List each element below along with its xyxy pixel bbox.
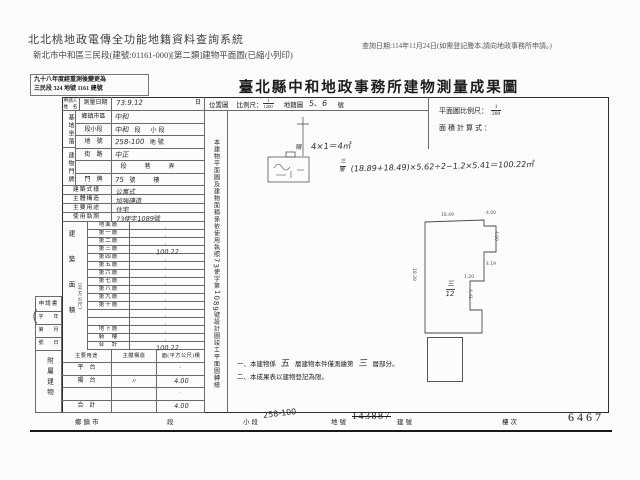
footer-township-label: 鄉鎮市 [75, 416, 101, 426]
dimension-label: 4.41 [467, 289, 472, 299]
land-registry-print-view: 北北桃地政電傳全功能地籍資料查詢系統 查詢日期:114年11月24日(如需登記謄… [0, 0, 640, 480]
footer-section-label: 段 [167, 416, 176, 426]
dimension-label: 4.00 [486, 211, 496, 216]
dimension-label: 1.20 [464, 275, 474, 280]
building-plan-outline [425, 220, 496, 333]
scan-graphics [0, 0, 640, 480]
dimension-label: 18.39 [411, 268, 416, 281]
footer-subsection-label: 小段 [243, 416, 260, 426]
location-sketch [268, 117, 309, 182]
footer-old-building-number: 143887 [352, 411, 391, 422]
dimension-label: 18.49 [441, 213, 454, 218]
dimension-label: 4.19 [486, 262, 496, 267]
dimension-label: 4.00 [493, 231, 498, 241]
footer-floor-label: 樓次 [502, 416, 519, 426]
footer-parcel-label: 地號 [331, 416, 348, 426]
footer-building-label: 建號 [397, 416, 414, 426]
footer-sheet-number: 6467 [568, 410, 604, 425]
page-bottom-rule [30, 430, 612, 432]
